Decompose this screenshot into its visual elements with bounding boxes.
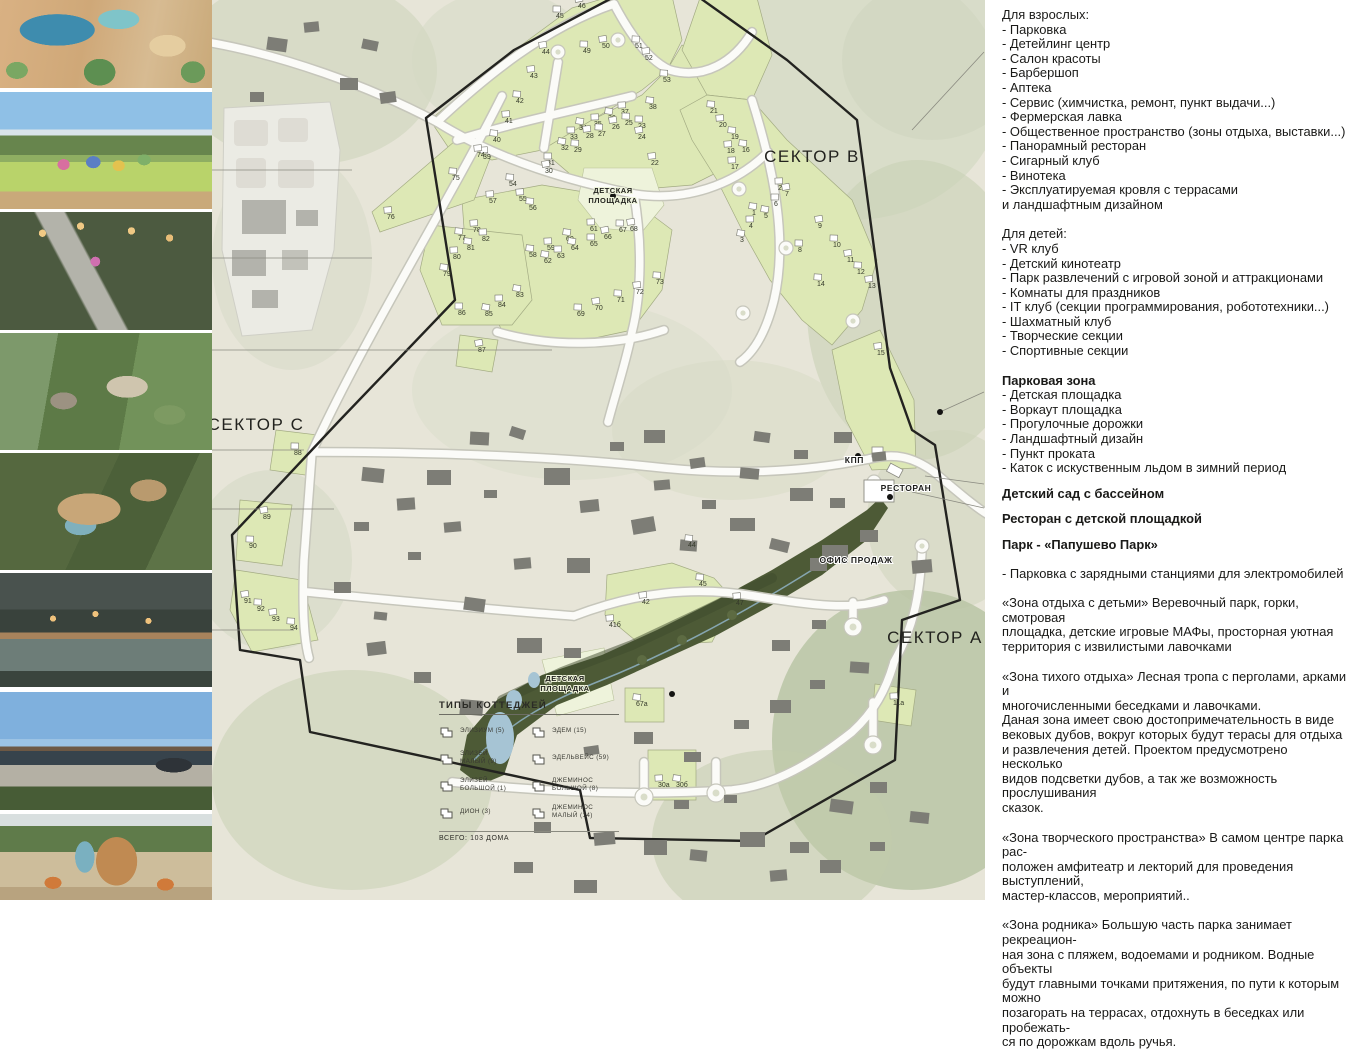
lot-number: 17: [731, 164, 739, 171]
cottage-footprint: [616, 220, 624, 226]
heading-park-name: Парк - «Папушево Парк»: [1002, 538, 1350, 553]
facility-label: КПП: [845, 455, 864, 465]
lot-number: 73: [656, 279, 664, 286]
existing-building: [634, 732, 653, 744]
cottage-footprint: [516, 189, 524, 196]
lot-number: 11: [847, 257, 854, 264]
cottage-footprint: [544, 153, 552, 159]
lot-number: 15: [877, 350, 885, 357]
existing-building: [250, 92, 264, 102]
cottage-footprint: [567, 127, 575, 133]
existing-building: [544, 468, 570, 485]
existing-building: [790, 842, 809, 853]
lot-number: 12: [857, 269, 865, 276]
existing-building: [684, 752, 701, 762]
legend-item: ЭЛИЗИУМ (5): [439, 721, 527, 741]
playground-label: ПЛОЩАДКА: [540, 684, 589, 693]
cottage-footprint: [606, 615, 614, 622]
lot-number: 64: [571, 245, 579, 252]
cottage-footprint: [890, 693, 898, 699]
lot-number: 43: [530, 73, 538, 80]
cottage-footprint: [287, 618, 295, 625]
legend-column-2: ЭДЕМ (15)ЭДЕЛЬВЕЙС (59)ДЖЕМИНОС БОЛЬШОЙ …: [531, 721, 619, 829]
list-item: - Каток с искуственным льдом в зимний пе…: [1002, 461, 1350, 476]
lot-number: 87: [478, 347, 486, 354]
legend-total: ВСЕГО: 103 ДОМА: [439, 831, 619, 842]
legend-item-label: ДЖЕМИНОС МАЛЫЙ (14): [552, 804, 593, 820]
cottage-icon: [439, 751, 455, 765]
existing-building: [689, 849, 707, 862]
poi-dot: [887, 494, 893, 500]
existing-building: [574, 880, 597, 893]
cottage-footprint: [527, 66, 535, 73]
existing-building: [810, 680, 825, 689]
lot-number: 54: [509, 181, 517, 188]
list-item: - Ландшафтный дизайн: [1002, 432, 1350, 447]
existing-building: [870, 782, 887, 793]
lot-number: 4: [749, 223, 753, 230]
playground-label: ПЛОЩАДКА: [588, 196, 637, 205]
existing-building: [820, 860, 841, 873]
lot-number: 42: [642, 599, 650, 606]
sector-label: СЕКТОР A: [887, 628, 983, 647]
lot-number: 76: [387, 214, 395, 221]
existing-building: [834, 432, 852, 443]
list-item: - Прогулочные дорожки: [1002, 417, 1350, 432]
cottage-footprint: [486, 191, 494, 198]
lot-number: 38: [649, 104, 657, 111]
legend-item: ДЖЕМИНОС МАЛЫЙ (14): [531, 802, 619, 822]
cottage-footprint: [583, 125, 591, 132]
list-item: - Эксплуатируемая кровля с террасами и л…: [1002, 183, 1350, 212]
heading-restaurant: Ресторан с детской площадкой: [1002, 512, 1350, 527]
description-panel: Для взрослых: - Парковка- Детейлинг цент…: [985, 0, 1360, 900]
legend-item-label: ЭДЕМ (15): [552, 727, 587, 735]
photo-strip: [0, 0, 212, 900]
cottage-footprint: [609, 116, 617, 123]
lot-number: 3: [740, 237, 744, 244]
cottage-footprint: [655, 775, 663, 781]
cottage-footprint: [502, 111, 510, 118]
cottage-footprint: [544, 238, 552, 244]
existing-building: [514, 862, 533, 873]
lot-number: 88: [294, 450, 302, 457]
cottage-footprint: [513, 91, 521, 98]
roundabout-island: [850, 318, 855, 323]
legend-item-label: ЭЛИЗЕЙ БОЛЬШОЙ (1): [460, 777, 506, 793]
existing-building: [770, 869, 788, 881]
cottage-footprint: [558, 138, 566, 145]
existing-building: [304, 21, 320, 33]
photo-pond-bridge: [0, 573, 212, 687]
lot-number: 62: [544, 258, 552, 265]
lot-number: 41б: [609, 621, 621, 629]
cottage-footprint: [241, 590, 249, 597]
park-zone-section: Парковая зона - Детская площадка- Воркау…: [1002, 374, 1350, 476]
facility-label: РЕСТОРАН: [881, 483, 932, 493]
lot-number: 63: [557, 253, 565, 260]
masterplan-map: 4645444950515253434241403938373635343332…: [212, 0, 985, 900]
cottage-icon: [439, 805, 455, 819]
lot-number: 58: [529, 252, 537, 259]
cottage-icon: [439, 778, 455, 792]
lot-number: 11а: [893, 700, 904, 707]
playground-label: ДЕТСКАЯ: [545, 674, 584, 683]
cottage-footprint: [795, 240, 803, 246]
list-item: - Общественное пространство (зоны отдыха…: [1002, 125, 1350, 140]
cottage-footprint: [746, 216, 754, 222]
kids-title: Для детей:: [1002, 227, 1350, 242]
list-item: - Парковка: [1002, 23, 1350, 38]
park-zone-title: Парковая зона: [1002, 374, 1350, 389]
cottage-footprint: [633, 281, 641, 288]
lot-number: 86: [458, 310, 466, 317]
existing-building: [517, 638, 542, 653]
existing-building: [334, 582, 351, 593]
existing-building: [266, 37, 288, 53]
lot-number: 75: [452, 175, 460, 182]
lot-number: 70: [595, 305, 603, 312]
photo-waterpark-aerial: [0, 0, 212, 88]
adults-title: Для взрослых:: [1002, 8, 1350, 23]
photo-play-tower: [0, 814, 212, 900]
lot-number: 92: [257, 606, 265, 613]
lot-number: 9: [818, 223, 822, 230]
cottage-footprint: [450, 247, 458, 253]
lot-number: 94: [290, 625, 298, 632]
cottage-footprint: [449, 168, 457, 175]
cottage-footprint: [632, 36, 640, 42]
sector-label: СЕКТОР C: [212, 415, 304, 434]
cottage-footprint: [601, 226, 609, 233]
list-item: - Барбершоп: [1002, 66, 1350, 81]
lot-number: 8: [798, 247, 802, 254]
cottage-footprint: [646, 97, 654, 104]
roundabout-island: [736, 186, 741, 191]
lot-number: 22: [651, 160, 659, 167]
poi-dot: [669, 691, 675, 697]
existing-building: [444, 521, 462, 532]
cottage-footprint: [260, 506, 268, 513]
existing-building: [830, 498, 845, 508]
cottage-footprint: [506, 174, 514, 181]
cottage-footprint: [673, 775, 681, 782]
lot-number: 46: [578, 3, 586, 10]
cottage-footprint: [542, 160, 550, 167]
existing-building: [408, 552, 421, 560]
cottage-footprint: [526, 198, 534, 205]
cottage-footprint: [685, 535, 693, 542]
lot-number: 5: [764, 213, 768, 220]
lot-number: 82: [482, 236, 490, 243]
cottage-footprint: [633, 694, 641, 701]
lot-number: 67: [619, 227, 627, 234]
existing-building: [366, 641, 386, 656]
cottage-icon: [531, 805, 547, 819]
cottage-footprint: [830, 235, 838, 241]
lot-number: 49: [583, 48, 591, 55]
cottage-footprint: [474, 145, 482, 152]
lot-number: 52: [645, 55, 653, 62]
existing-building: [644, 840, 667, 855]
lot-number: 7: [785, 191, 789, 198]
park-zone-list: - Детская площадка- Воркаут площадка- Пр…: [1002, 388, 1350, 476]
cottage-footprint: [470, 220, 478, 227]
cottage-footprint: [539, 41, 547, 48]
list-item: - Панорамный ресторан: [1002, 139, 1350, 154]
existing-building: [730, 518, 755, 531]
roundabout-island: [615, 37, 620, 42]
existing-building: [470, 432, 490, 446]
existing-building: [790, 488, 813, 501]
cottage-footprint: [618, 102, 626, 108]
lot-number: 56: [529, 205, 537, 212]
lot-number: 74: [477, 152, 485, 159]
cottage-footprint: [761, 206, 769, 213]
lot-number: 30б: [676, 781, 688, 789]
park-paragraphs: «Зона отдыха с детьми» Веревочный парк, …: [1002, 596, 1350, 1050]
existing-building: [724, 795, 737, 803]
lot-number: 24: [638, 134, 646, 141]
lot-number: 93: [272, 616, 280, 623]
lot-number: 80: [453, 254, 461, 261]
cottage-footprint: [660, 70, 668, 77]
existing-building: [379, 91, 396, 104]
cul-de-sac-island: [713, 790, 720, 797]
cottage-footprint: [635, 116, 643, 122]
legend-item: ЭЛИЗЕЙ МАЛЫЙ (9): [439, 748, 527, 768]
park-paragraph: «Зона родника» Большую часть парка заним…: [1002, 918, 1350, 1049]
legend-item: ДЖЕМИНОС БОЛЬШОЙ (8): [531, 775, 619, 795]
cottage-footprint: [554, 246, 562, 252]
cottage-footprint: [874, 343, 882, 350]
existing-building: [772, 640, 790, 651]
list-item: - Сервис (химчистка, ремонт, пункт выдач…: [1002, 96, 1350, 111]
existing-building: [397, 497, 416, 510]
cottage-footprint: [707, 101, 715, 108]
cottage-footprint: [563, 229, 571, 236]
cottage-footprint: [553, 6, 561, 12]
cottage-footprint: [587, 234, 595, 240]
existing-building: [654, 479, 671, 490]
existing-building: [427, 470, 451, 485]
cottage-footprint: [291, 443, 299, 449]
lot-number: 26: [612, 124, 620, 131]
lot-number: 65: [590, 241, 598, 248]
cottage-footprint: [440, 264, 448, 271]
photo-playground: [0, 92, 212, 209]
existing-building: [734, 720, 749, 729]
cottage-footprint: [526, 245, 534, 252]
cottage-footprint: [648, 153, 656, 160]
cottage-footprint: [728, 157, 736, 163]
existing-building: [770, 700, 791, 713]
lot-number: 27: [598, 131, 606, 138]
cottage-footprint: [653, 272, 661, 279]
playground-label: ДЕТСКАЯ: [593, 186, 632, 195]
lot-number: 66: [604, 234, 612, 241]
cottage-footprint: [716, 115, 724, 122]
lot-number: 32: [561, 145, 569, 152]
lot-number: 85: [485, 311, 493, 318]
adults-list: - Парковка- Детейлинг центр- Салон красо…: [1002, 23, 1350, 213]
lot-number: 16: [742, 147, 750, 154]
list-item: - Парк развлечений с игровой зоной и атт…: [1002, 271, 1350, 286]
lot-number: 81: [467, 245, 475, 252]
list-item: - Спортивные секции: [1002, 344, 1350, 359]
lot-number: 84: [498, 302, 506, 309]
cottage-footprint: [513, 285, 521, 292]
cottage-footprint: [482, 304, 490, 311]
cottage-footprint: [455, 303, 463, 309]
park-paragraph: «Зона творческого пространства» В самом …: [1002, 831, 1350, 904]
existing-building: [689, 457, 705, 469]
lot-number: 13: [868, 283, 876, 290]
list-item: - Комнаты для праздников: [1002, 286, 1350, 301]
cottage-footprint: [865, 275, 873, 282]
lot-number: 47: [736, 600, 744, 607]
existing-building: [579, 499, 599, 513]
cottage-footprint: [775, 178, 783, 184]
cul-de-sac-island: [641, 794, 648, 801]
lot-number: 10: [833, 242, 841, 249]
cottage-footprint: [639, 592, 647, 599]
existing-building: [911, 559, 932, 574]
lot-number: 41: [505, 118, 513, 125]
existing-building: [610, 442, 624, 451]
list-item: - Шахматный клуб: [1002, 315, 1350, 330]
lot-number: 61: [590, 226, 598, 233]
roundabout-island: [783, 245, 788, 250]
cottage-footprint: [771, 194, 779, 200]
lot-number: 45: [699, 581, 707, 588]
cottage-footprint: [479, 229, 487, 235]
cottage-footprint: [737, 230, 745, 237]
cul-de-sac-island: [870, 742, 877, 749]
cottage-footprint: [587, 219, 595, 225]
legend-item-label: ДИОН (3): [460, 808, 491, 816]
cottage-footprint: [814, 274, 822, 281]
lot-number: 90: [249, 543, 257, 550]
cottage-footprint: [599, 35, 607, 42]
cottage-footprint: [490, 130, 498, 137]
lot-number: 45: [556, 13, 564, 20]
masterplan-board: { "photos": [ {"name":"waterpark-aerial-…: [0, 0, 1360, 900]
list-item: - VR клуб: [1002, 242, 1350, 257]
photo-park-slope: [0, 333, 212, 450]
existing-building: [702, 500, 716, 509]
existing-building: [514, 557, 532, 569]
cottage-footprint: [749, 203, 757, 210]
legend-item-label: ДЖЕМИНОС БОЛЬШОЙ (8): [552, 777, 598, 793]
existing-building: [850, 661, 870, 673]
existing-building: [870, 842, 885, 851]
lot-number: 19: [731, 134, 739, 141]
existing-building: [794, 450, 808, 459]
kids-section: Для детей: - VR клуб- Детский кинотеатр-…: [1002, 227, 1350, 358]
photo-wooden-decks: [0, 453, 212, 570]
cottage-footprint: [592, 297, 600, 304]
cottage-footprint: [728, 127, 736, 134]
roundabout-island: [555, 49, 560, 54]
poi-dot: [937, 409, 943, 415]
roundabout-island: [740, 310, 745, 315]
cottage-footprint: [614, 290, 622, 296]
cottage-footprint: [635, 126, 643, 133]
lot-number: 14: [817, 281, 825, 288]
existing-building: [909, 811, 929, 824]
legend-item: ЭДЕЛЬВЕЙС (59): [531, 748, 619, 768]
lot-number: 53: [663, 77, 671, 84]
cottage-footprint: [568, 238, 576, 245]
park-paragraph: «Зона отдыха с детьми» Веревочный парк, …: [1002, 596, 1350, 654]
lot-number: 29: [574, 147, 582, 154]
cottage-icon: [531, 778, 547, 792]
existing-building: [644, 430, 665, 443]
cottage-footprint: [696, 574, 704, 581]
lot-number: 69: [577, 311, 585, 318]
facility-label: ОФИС ПРОДАЖ: [819, 555, 892, 565]
legend-item-label: ЭДЕЛЬВЕЙС (59): [552, 754, 609, 762]
cottage-footprint: [455, 228, 463, 235]
cottage-footprint: [475, 339, 483, 346]
lot-number: 83: [516, 292, 524, 299]
existing-building: [872, 451, 887, 461]
cottage-icon: [531, 751, 547, 765]
list-item: - Сигарный клуб: [1002, 154, 1350, 169]
cottage-footprint: [854, 262, 862, 268]
cottage-footprint: [591, 114, 599, 120]
cottage-footprint: [580, 41, 588, 47]
lot-number: 30а: [658, 782, 670, 789]
lot-number: 6: [774, 201, 778, 208]
cottage-icon: [531, 724, 547, 738]
lot-number: 30: [545, 168, 553, 175]
existing-building: [354, 522, 369, 531]
cottage-footprint: [254, 599, 262, 605]
cottage-footprint: [595, 124, 603, 130]
cottage-footprint: [384, 207, 392, 214]
cottage-footprint: [642, 47, 650, 54]
sector-label: СЕКТОР B: [764, 147, 860, 166]
list-item: - Воркаут площадка: [1002, 403, 1350, 418]
lot-number: 42: [516, 98, 524, 105]
cottage-footprint: [782, 183, 790, 190]
cottage-footprint: [622, 113, 630, 119]
lot-number: 25: [625, 120, 633, 127]
cul-de-sac-island: [850, 624, 857, 631]
legend-item-label: ЭЛИЗЕЙ МАЛЫЙ (9): [460, 750, 497, 766]
cottage-footprint: [464, 238, 472, 245]
lot-number: 44: [542, 49, 550, 56]
existing-building: [340, 78, 358, 90]
legend-title: ТИПЫ КОТТЕДЖЕЙ: [439, 700, 619, 715]
cottage-footprint: [269, 608, 277, 615]
cottage-footprint: [724, 141, 732, 148]
lot-number: 68: [630, 226, 638, 233]
photo-evening-park: [0, 212, 212, 330]
roundabout-island: [919, 543, 924, 548]
existing-building: [740, 467, 760, 480]
list-item: - Винотека: [1002, 169, 1350, 184]
list-item: - Пункт проката: [1002, 447, 1350, 462]
existing-building: [564, 648, 581, 658]
heading-kindergarten: Детский сад с бассейном: [1002, 487, 1350, 502]
lot-number: 91: [244, 598, 252, 605]
list-item: - Детская площадка: [1002, 388, 1350, 403]
list-item: - Детский кинотеатр: [1002, 257, 1350, 272]
cottage-footprint: [605, 108, 613, 115]
